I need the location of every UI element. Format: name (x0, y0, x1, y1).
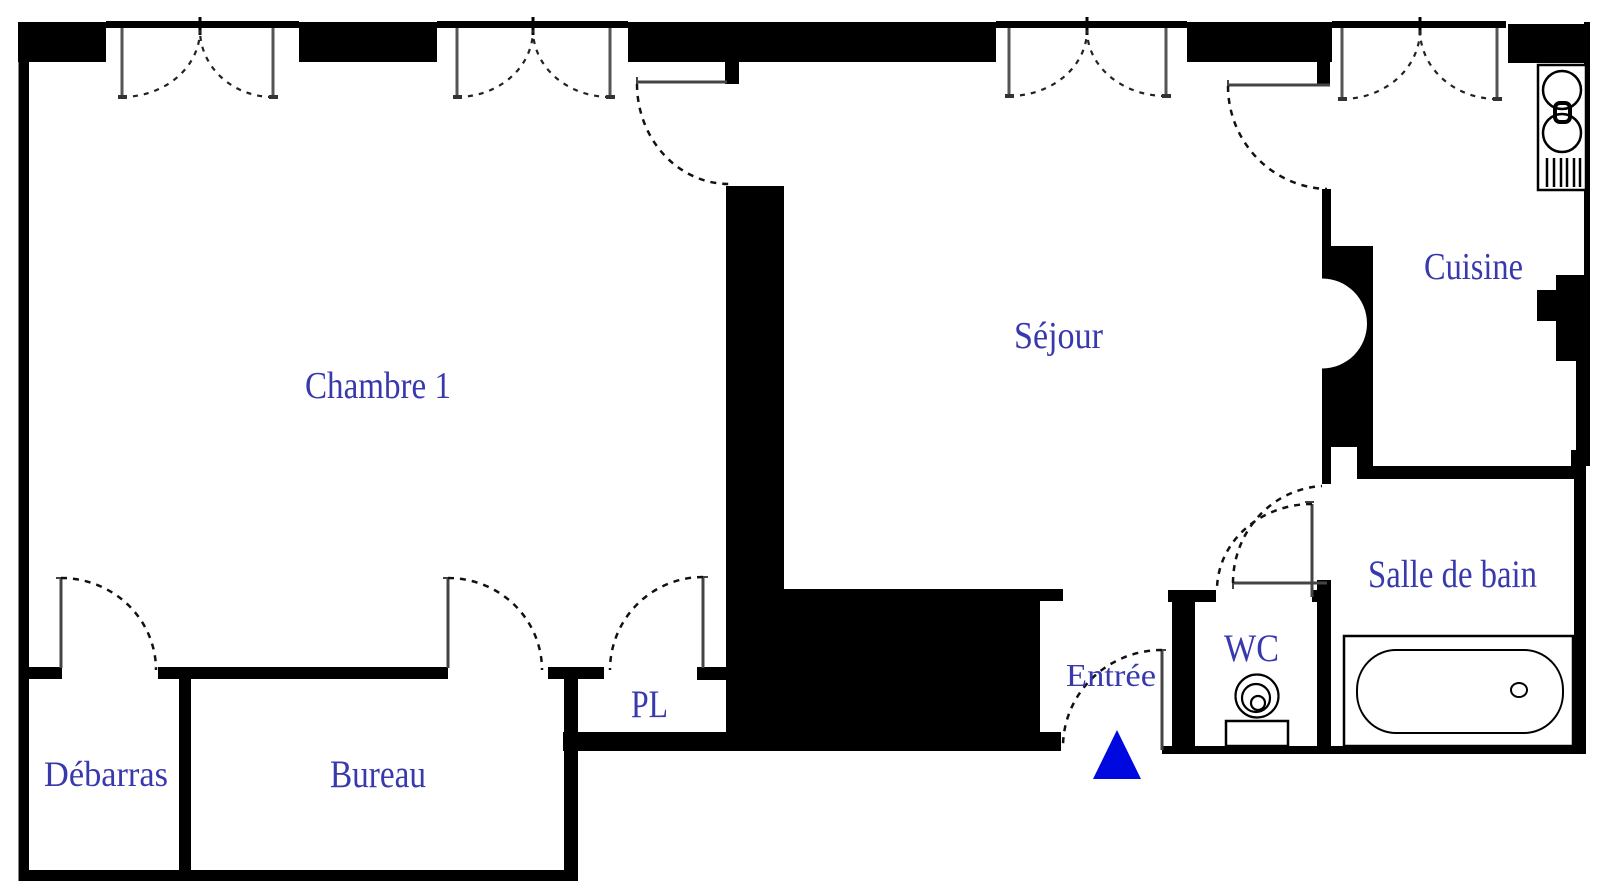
svg-text:Bureau: Bureau (330, 753, 426, 796)
svg-text:Entrée: Entrée (1066, 657, 1156, 693)
svg-text:Chambre 1: Chambre 1 (305, 365, 451, 407)
svg-text:Salle de bain: Salle de bain (1368, 553, 1537, 596)
svg-text:WC: WC (1224, 627, 1279, 670)
svg-text:Cuisine: Cuisine (1424, 246, 1523, 288)
svg-text:Débarras: Débarras (44, 754, 168, 794)
svg-text:PL: PL (631, 683, 668, 726)
svg-text:Séjour: Séjour (1014, 315, 1103, 357)
